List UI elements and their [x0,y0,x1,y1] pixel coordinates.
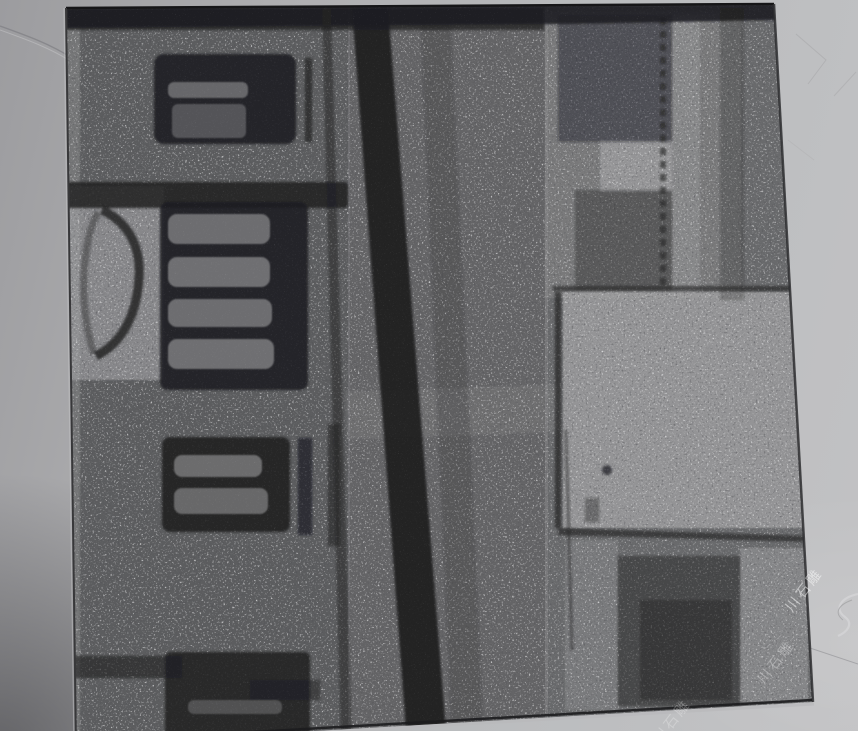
granite-tile-photo [0,0,858,731]
photo-scene: 川石雕 川石雕 川石雕 [0,0,858,731]
